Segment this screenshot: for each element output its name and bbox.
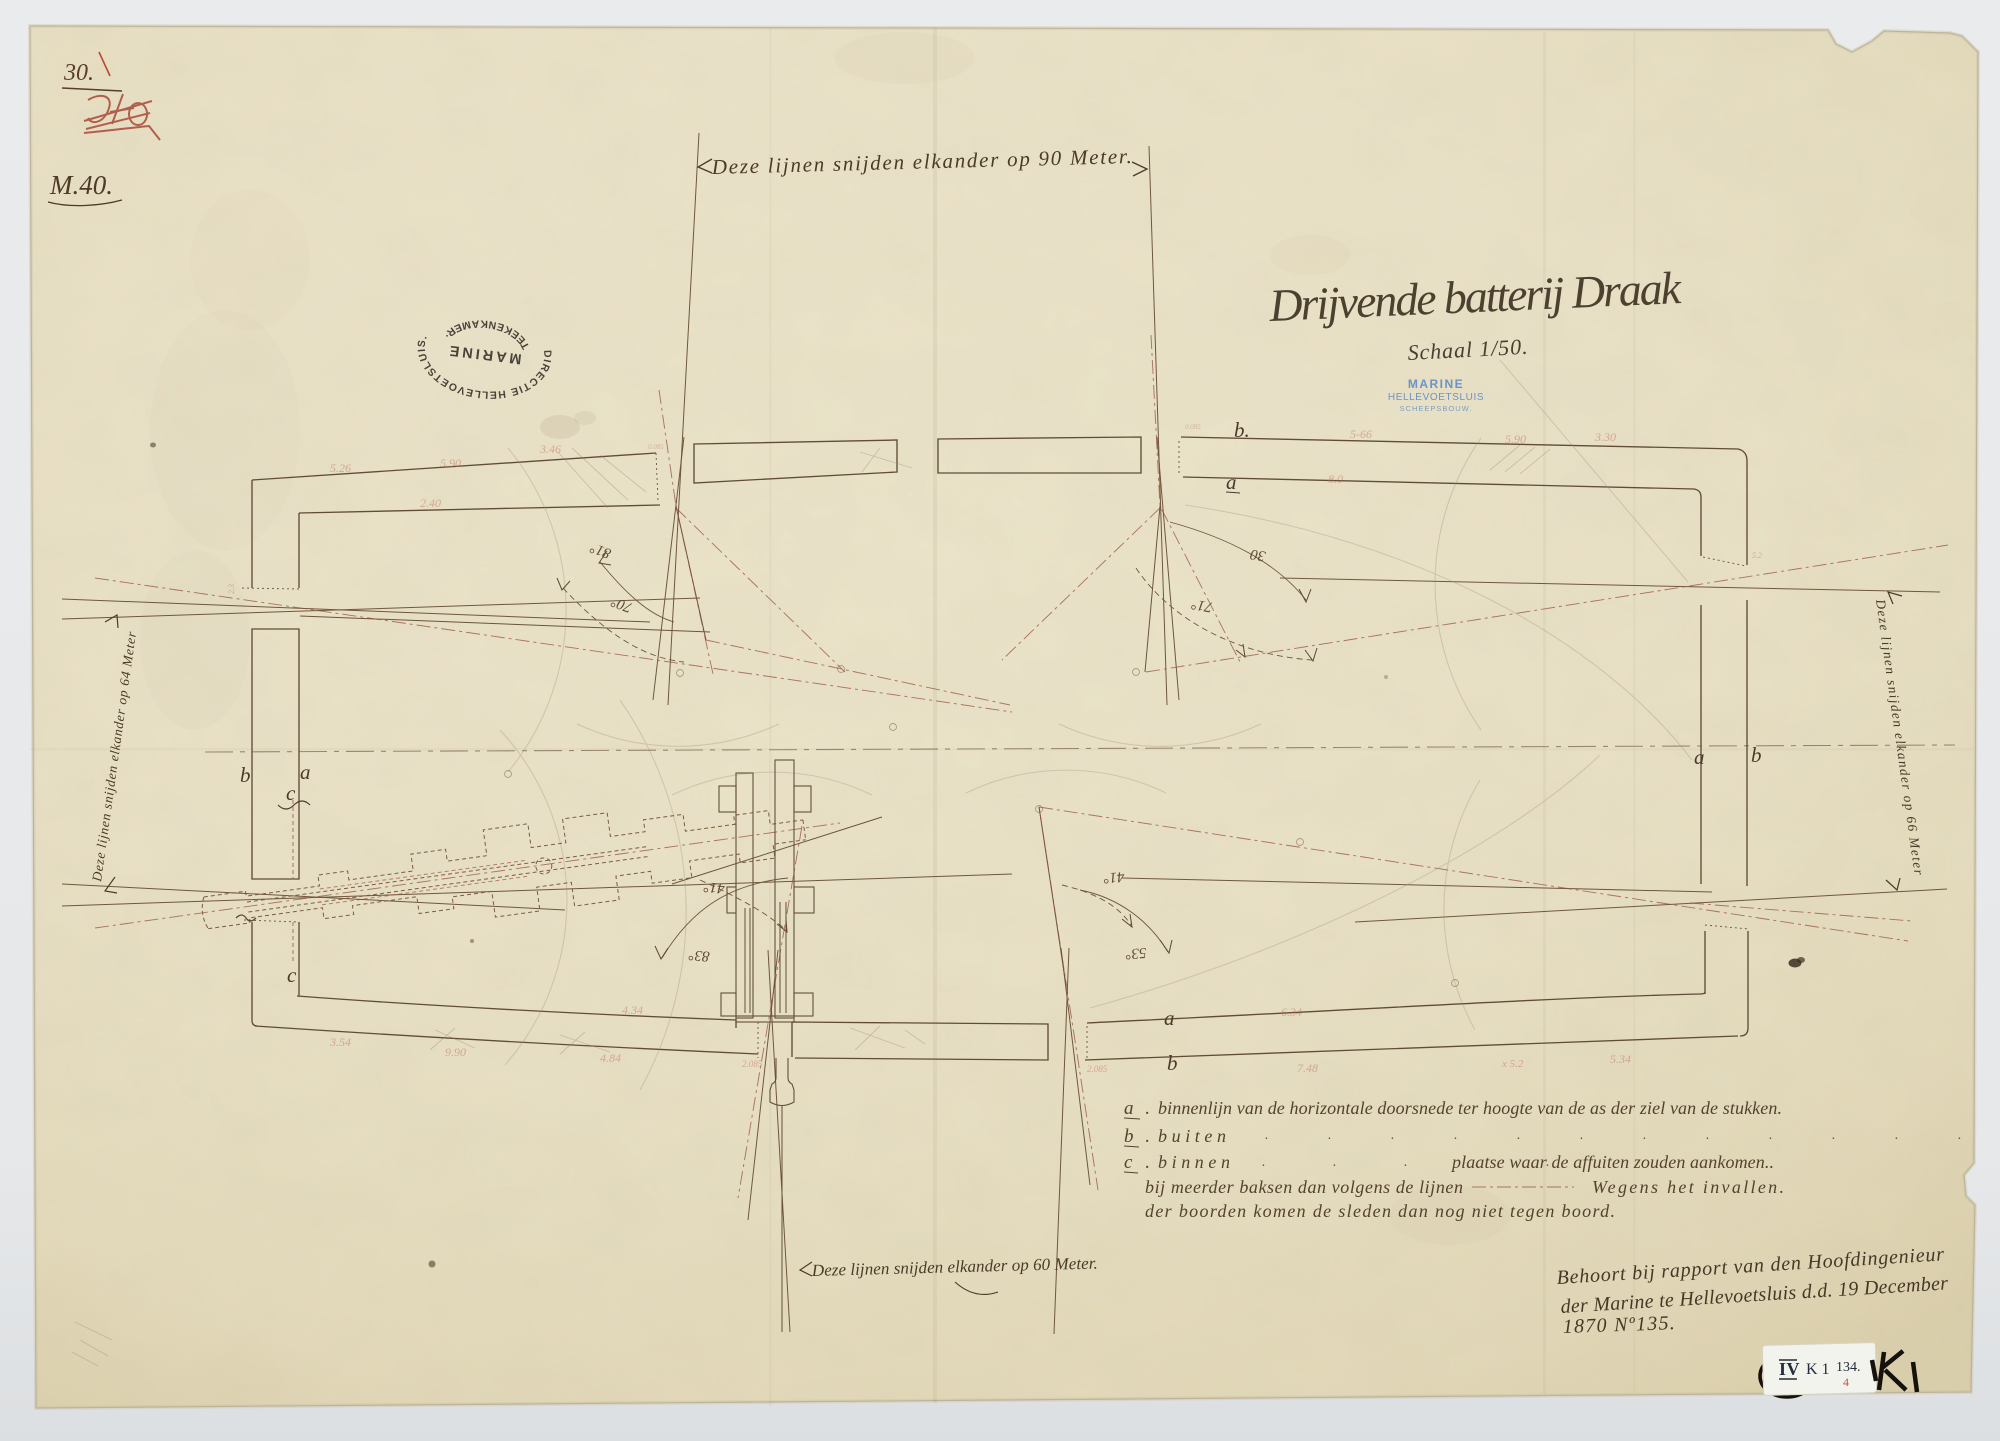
svg-text:c: c xyxy=(287,963,297,987)
svg-text:2.40: 2.40 xyxy=(420,496,441,510)
svg-text:MARINE: MARINE xyxy=(1408,377,1464,391)
svg-text:5.90: 5.90 xyxy=(1505,432,1526,446)
svg-text:7.48: 7.48 xyxy=(1297,1061,1318,1075)
svg-text:b.: b. xyxy=(1234,418,1250,442)
svg-text:3.54: 3.54 xyxy=(329,1035,351,1049)
svg-text:3.30: 3.30 xyxy=(1594,430,1616,444)
svg-text:a: a xyxy=(1694,745,1705,769)
svg-text:HELLEVOETSLUIS: HELLEVOETSLUIS xyxy=(1388,392,1484,403)
svg-text:a: a xyxy=(300,760,311,784)
svg-text:1870 Nº135.: 1870 Nº135. xyxy=(1562,1312,1675,1338)
svg-text:Wegens het invallen.: Wegens het invallen. xyxy=(1592,1177,1784,1197)
svg-text:der boorden komen de sleden da: der boorden komen de sleden dan nog niet… xyxy=(1145,1201,1615,1221)
svg-text:2.085: 2.085 xyxy=(1087,1064,1108,1074)
svg-text:2.3: 2.3 xyxy=(227,584,236,594)
svg-text:41°: 41° xyxy=(703,878,725,896)
svg-text:5.2: 5.2 xyxy=(1752,551,1762,560)
svg-text:134.: 134. xyxy=(1836,1360,1861,1375)
svg-text:5.90: 5.90 xyxy=(440,456,461,470)
svg-text:30: 30 xyxy=(1249,545,1268,564)
svg-text:c: c xyxy=(286,781,296,805)
svg-text:SCHEEPSBOUW.: SCHEEPSBOUW. xyxy=(1400,404,1473,413)
svg-text:53°: 53° xyxy=(1125,944,1147,962)
svg-text:0.085: 0.085 xyxy=(1185,423,1201,431)
svg-text:5.26: 5.26 xyxy=(330,461,351,475)
svg-text:41°: 41° xyxy=(1103,868,1125,886)
svg-text:6.34: 6.34 xyxy=(1281,1005,1302,1019)
svg-text:b: b xyxy=(240,763,251,787)
svg-text:b: b xyxy=(1167,1051,1178,1075)
svg-text:x 5.2: x 5.2 xyxy=(1501,1058,1524,1070)
svg-text:9.90: 9.90 xyxy=(445,1045,466,1059)
svg-text:b: b xyxy=(1751,743,1762,767)
svg-text:4.34: 4.34 xyxy=(622,1003,643,1017)
svg-text:4.84: 4.84 xyxy=(600,1051,621,1065)
svg-text:plaatse waar de affuiten zoude: plaatse waar de affuiten zouden aankomen… xyxy=(1450,1152,1774,1172)
svg-text:a: a xyxy=(1226,470,1237,494)
svg-text:. . . . . . . . . . . .: . . . . . . . . . . . . xyxy=(1265,1128,1990,1143)
svg-text:5.34: 5.34 xyxy=(1610,1052,1631,1066)
svg-text:5-66: 5-66 xyxy=(1350,427,1372,441)
svg-text:0.085: 0.085 xyxy=(648,443,664,451)
svg-text:a: a xyxy=(1164,1006,1175,1030)
svg-text:3.46: 3.46 xyxy=(539,442,561,456)
svg-text:2.085: 2.085 xyxy=(742,1059,763,1069)
svg-text:bij meerder baksen dan volgens: bij meerder baksen dan volgens de lijnen xyxy=(1145,1177,1463,1197)
svg-text:binnenlijn van de horizontale: binnenlijn van de horizontale doorsnede … xyxy=(1158,1098,1782,1118)
svg-text:M.40.: M.40. xyxy=(49,170,113,200)
svg-text:IV: IV xyxy=(1779,1359,1800,1379)
svg-text:K 1: K 1 xyxy=(1806,1361,1830,1378)
svg-text:8.0: 8.0 xyxy=(1328,472,1343,486)
svg-text:30.: 30. xyxy=(63,60,94,86)
svg-text:4: 4 xyxy=(1843,1375,1849,1389)
svg-text:83°: 83° xyxy=(688,946,710,964)
